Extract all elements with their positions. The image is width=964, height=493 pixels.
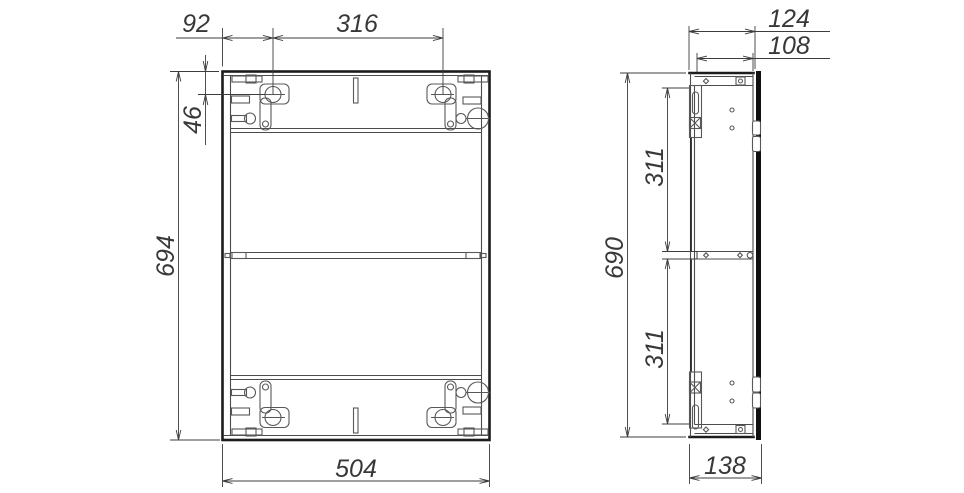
front-dimensions: 92 316 46 694 504 [152,10,490,487]
cabinet-drawing: 92 316 46 694 504 [0,0,964,493]
front-top-hardware [232,75,491,130]
pin-hole [730,108,734,112]
corner-bracket-icon [458,76,488,82]
side-top-panel [695,77,754,86]
hinge-bracket-icon [690,86,702,138]
dim-hanger-spacing-label: 316 [336,10,378,38]
dim-depth-total-label: 138 [704,452,746,480]
pin-hole [730,399,734,403]
dim-front-height-label: 694 [152,235,180,277]
corner-bracket-icon [232,76,262,82]
side-view: 124 108 690 311 [601,5,830,484]
corner-bracket-icon [232,429,262,435]
keyhole-hanger-icon [427,84,456,130]
hinge-bracket-icon [690,372,702,429]
dim-shelf-upper-label: 311 [641,147,669,187]
back-slot [354,78,359,103]
dim-hanger-drop-label: 46 [179,106,207,134]
pin-hole [730,126,734,130]
keyhole-hanger-icon [427,381,456,428]
front-shelf [225,253,486,259]
front-bottom-hardware [232,381,491,436]
side-bottom-panel [695,425,754,434]
side-shelf [697,252,753,260]
keyhole-hanger-icon [260,381,289,428]
keyhole-hanger-icon [260,84,289,130]
technical-drawing-sheet: 92 316 46 694 504 [0,0,964,493]
dim-front-width-label: 504 [335,455,377,483]
dim-shelf-lower-label: 311 [641,329,669,369]
dim-side-height-label: 690 [601,237,629,279]
dim-depth-body-label: 124 [768,5,810,33]
dim-hanger-offset-label: 92 [182,10,210,38]
cam-lock-icon [466,382,490,403]
pin-hole [730,381,734,385]
back-slot [354,408,359,433]
dim-depth-inner-label: 108 [768,32,810,60]
cam-lock-icon [466,108,490,129]
front-view: 92 316 46 694 504 [152,10,490,487]
corner-bracket-icon [458,429,488,435]
